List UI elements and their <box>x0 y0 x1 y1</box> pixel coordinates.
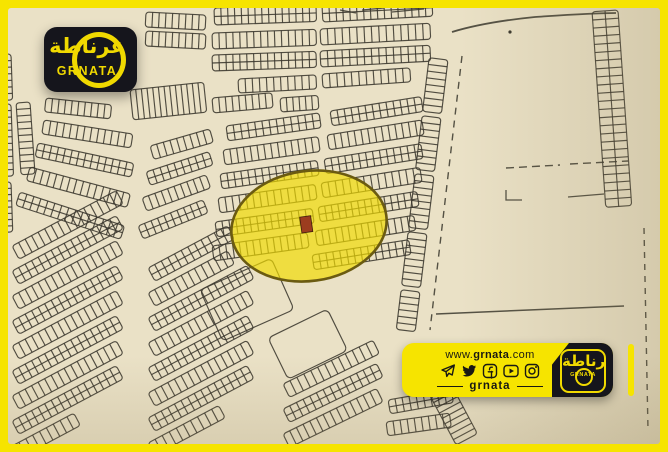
banner-logo-badge: غرناطة GRNATA <box>560 349 606 393</box>
banner-logo-panel: غرناطة GRNATA <box>552 343 613 397</box>
social-handle-line: grnata <box>424 380 556 392</box>
facebook-icon <box>482 363 498 379</box>
website-suffix: .com <box>509 349 534 361</box>
website-url: www.grnata.com <box>424 349 556 361</box>
accent-bar <box>628 344 634 396</box>
right-rule <box>517 386 543 387</box>
highlighted-plot <box>300 216 313 233</box>
info-banner: www.grnata.com grnata غرناطة GRNATA <box>402 343 613 397</box>
banner-contact-block: www.grnata.com grnata <box>424 349 556 392</box>
instagram-icon <box>524 363 540 379</box>
website-prefix: www. <box>445 349 473 361</box>
youtube-icon <box>503 363 519 379</box>
left-rule <box>437 386 463 387</box>
flyer-root: { "colors": { "frame_yellow": "#f6e400",… <box>0 0 668 452</box>
brand-logo-latin: GRNATA <box>48 64 126 78</box>
social-icons-row <box>424 363 556 379</box>
website-name: grnata <box>473 349 509 361</box>
banner-ring-icon <box>575 368 593 386</box>
brand-logo-arabic: غرناطة <box>48 36 126 57</box>
twitter-icon <box>461 363 477 379</box>
telegram-icon <box>440 363 456 379</box>
brand-logo-card: غرناطة GRNATA <box>44 27 137 92</box>
social-handle: grnata <box>469 380 510 392</box>
